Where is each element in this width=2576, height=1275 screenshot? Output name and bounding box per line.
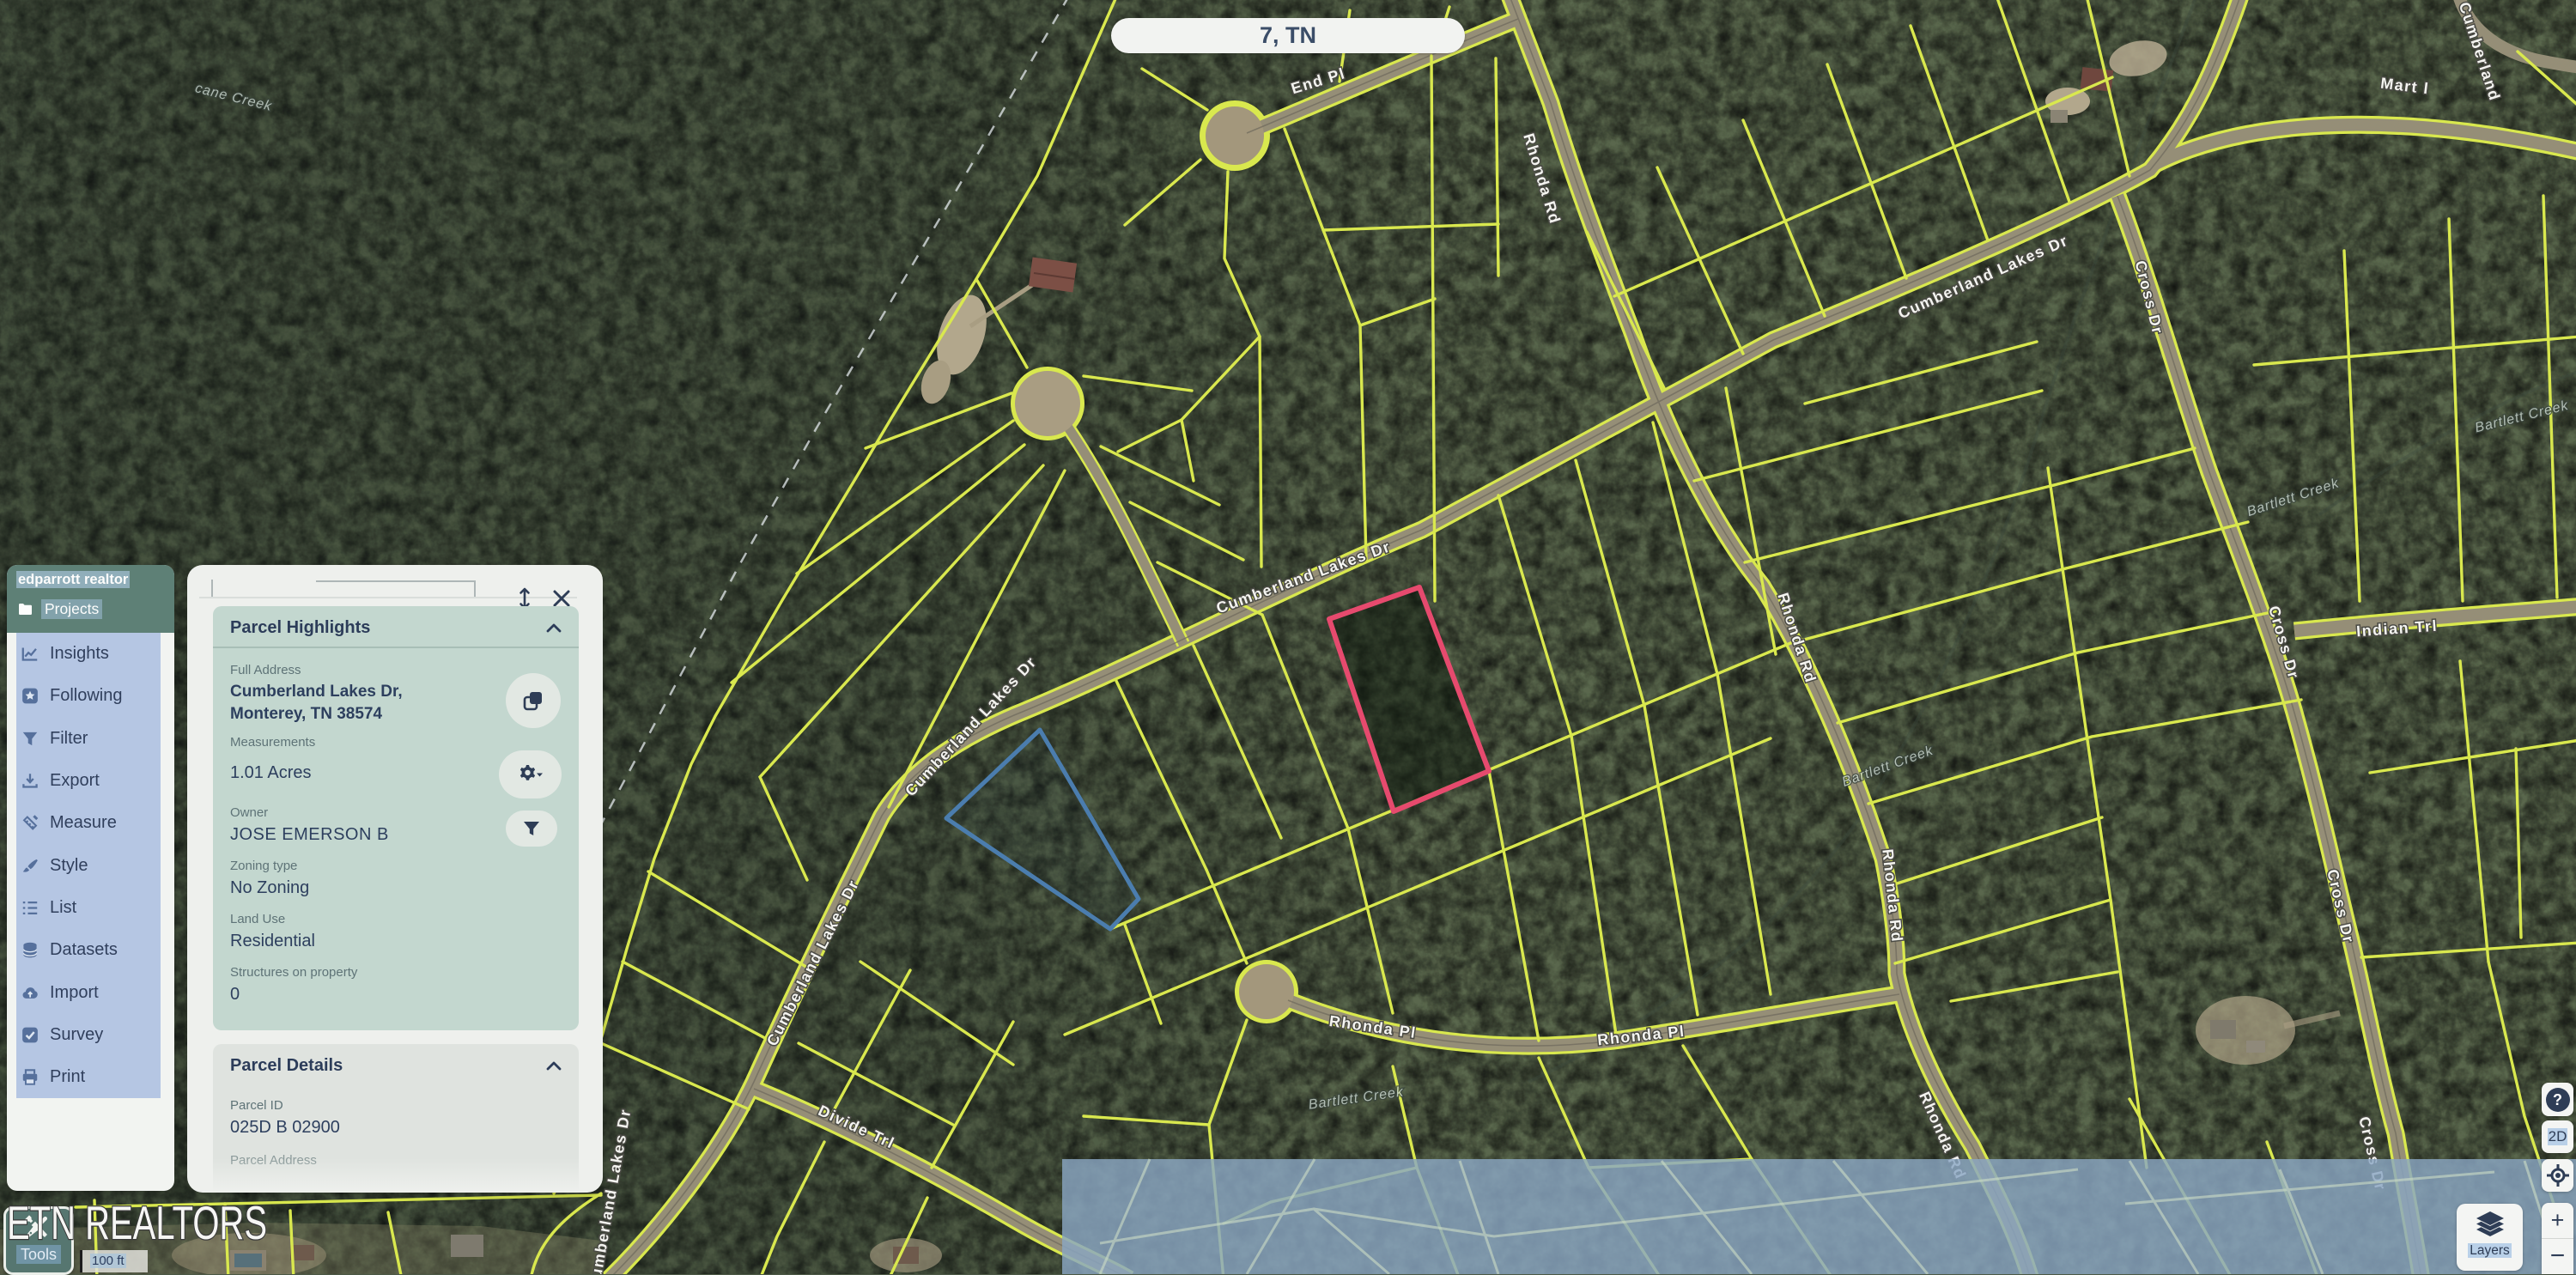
svg-text:ETN REALTORS: ETN REALTORS	[7, 1196, 267, 1249]
